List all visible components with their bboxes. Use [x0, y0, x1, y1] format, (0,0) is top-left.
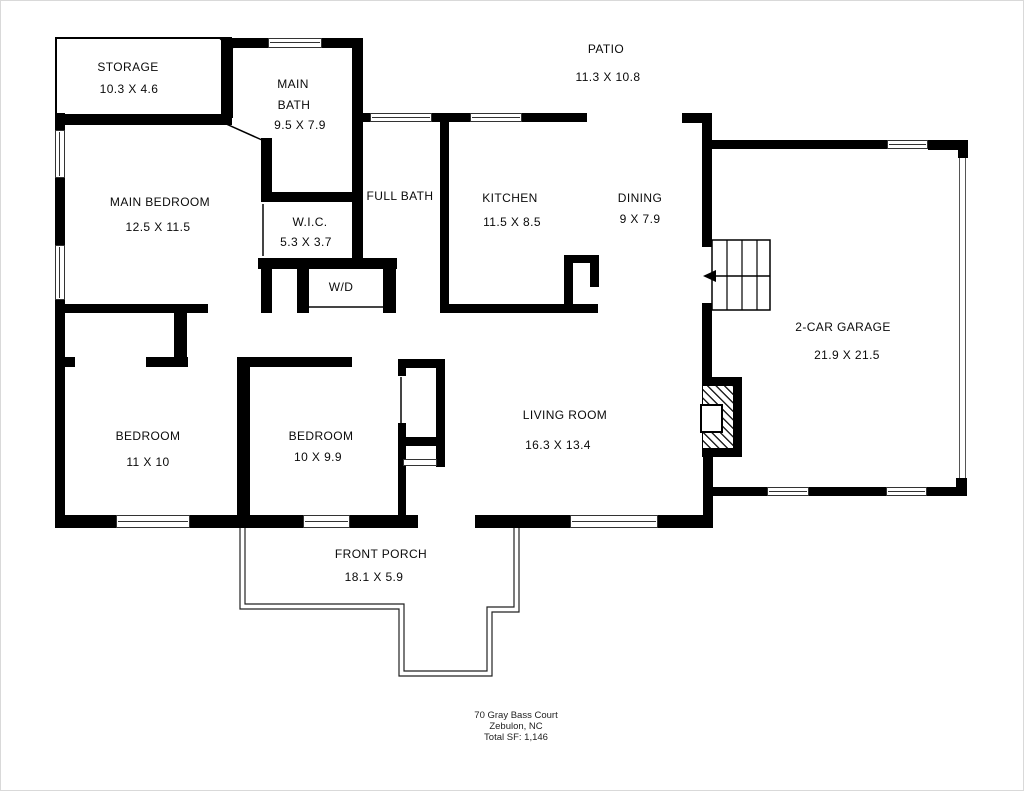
room-label-bedroom-left: BEDROOM	[116, 429, 181, 443]
total-sf: Total SF: 1,146	[474, 732, 557, 743]
room-dims-main-bedroom: 12.5 X 11.5	[126, 220, 191, 234]
room-label-living-room: LIVING ROOM	[523, 408, 607, 422]
stair-arrowhead	[703, 270, 716, 282]
room-label-kitchen: KITCHEN	[482, 191, 537, 205]
address-line-1: 70 Gray Bass Court	[474, 710, 557, 721]
room-dims-garage: 21.9 X 21.5	[814, 348, 880, 362]
room-label-full-bath: FULL BATH	[367, 189, 434, 203]
room-dims-front-porch: 18.1 X 5.9	[345, 570, 404, 584]
room-dims-bedroom-left: 11 X 10	[126, 455, 169, 469]
room-label-patio: PATIO	[588, 42, 624, 56]
room-dims-main-bath: 9.5 X 7.9	[274, 118, 326, 132]
room-label-storage: STORAGE	[97, 60, 158, 74]
room-dims-storage: 10.3 X 4.6	[100, 82, 159, 96]
address-line-2: Zebulon, NC	[474, 721, 557, 732]
room-dims-dining: 9 X 7.9	[620, 212, 661, 226]
floor-plan: STORAGE 10.3 X 4.6 MAIN BATH 9.5 X 7.9 P…	[0, 0, 1024, 791]
room-dims-bedroom-middle: 10 X 9.9	[294, 450, 342, 464]
room-label-front-porch: FRONT PORCH	[335, 547, 427, 561]
room-label-laundry: W/D	[329, 280, 354, 294]
room-label-wic: W.I.C.	[292, 215, 327, 229]
address-block: 70 Gray Bass Court Zebulon, NC Total SF:…	[474, 710, 557, 743]
door-swing-line	[224, 123, 262, 140]
room-label-bedroom-middle: BEDROOM	[289, 429, 354, 443]
room-label-main-bath-1: MAIN	[277, 77, 309, 91]
room-dims-kitchen: 11.5 X 8.5	[483, 215, 541, 229]
room-dims-wic: 5.3 X 3.7	[280, 235, 332, 249]
room-dims-patio: 11.3 X 10.8	[576, 70, 641, 84]
staircase	[703, 240, 770, 310]
room-dims-living-room: 16.3 X 13.4	[525, 438, 591, 452]
room-label-main-bedroom: MAIN BEDROOM	[110, 195, 210, 209]
corner-line	[220, 39, 233, 49]
room-label-dining: DINING	[618, 191, 662, 205]
room-label-main-bath-2: BATH	[278, 98, 311, 112]
room-label-garage: 2-CAR GARAGE	[795, 320, 891, 334]
floor-plan-linework	[0, 0, 1024, 791]
